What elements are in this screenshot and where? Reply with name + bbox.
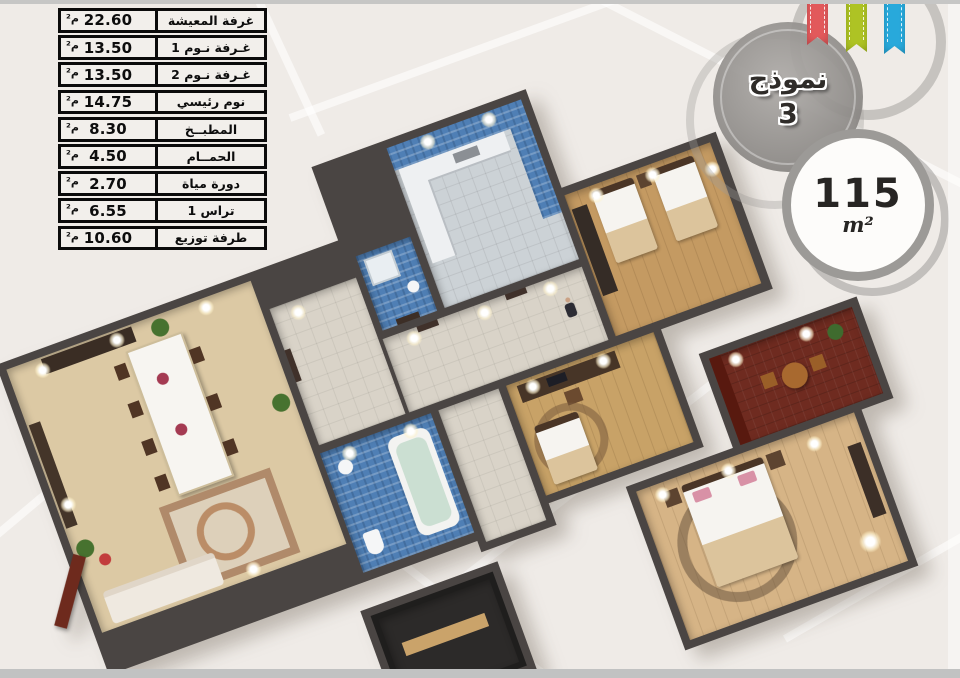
plant bbox=[270, 391, 293, 414]
area-value: 2.70 bbox=[89, 175, 127, 193]
bookmark-ribbon-blue bbox=[884, 0, 905, 54]
right-edge-highlight bbox=[948, 0, 960, 678]
area-value-cell: م²13.50 bbox=[58, 62, 158, 87]
bottom-edge-bar bbox=[0, 669, 960, 678]
top-edge-bar bbox=[0, 0, 960, 4]
sqm-unit: م² bbox=[66, 121, 79, 134]
area-value: 6.55 bbox=[89, 202, 127, 220]
sqm-unit: م² bbox=[66, 202, 79, 215]
total-area-unit: m² bbox=[842, 212, 873, 237]
terrace-chair bbox=[760, 372, 778, 390]
terrace-chair bbox=[809, 354, 827, 372]
floor-lamp-light bbox=[856, 528, 884, 556]
sqm-unit: م² bbox=[66, 148, 79, 161]
area-value: 22.60 bbox=[84, 11, 132, 29]
room-name-cell: غـرفة نـوم 2 bbox=[155, 62, 267, 87]
area-value-cell: م²10.60 bbox=[58, 226, 158, 251]
sqm-unit: م² bbox=[66, 94, 79, 107]
sqm-unit: م² bbox=[66, 175, 79, 188]
area-value-cell: م²13.50 bbox=[58, 35, 158, 60]
table-row: م²2.70 دورة مياة bbox=[58, 171, 270, 196]
room-name-cell: غـرفة نـوم 1 bbox=[155, 35, 267, 60]
table-row: م²6.55 تراس 1 bbox=[58, 198, 270, 223]
total-area-badge: 115 m² bbox=[782, 129, 934, 281]
area-value: 4.50 bbox=[89, 147, 127, 165]
area-value-cell: م²6.55 bbox=[58, 198, 158, 223]
table-row: م²13.50 غـرفة نـوم 1 bbox=[58, 35, 270, 60]
sqm-unit: م² bbox=[66, 230, 79, 243]
terrace-table bbox=[778, 359, 811, 392]
area-value: 8.30 bbox=[89, 120, 127, 138]
room-name-cell: تراس 1 bbox=[155, 198, 267, 223]
room-name-cell: غرفة المعيشة bbox=[155, 8, 267, 33]
table-row: م²8.30 المطبــخ bbox=[58, 117, 270, 142]
area-value: 13.50 bbox=[84, 66, 132, 84]
room-name-cell: دورة مياة bbox=[155, 171, 267, 196]
area-value-cell: م²8.30 bbox=[58, 117, 158, 142]
sqm-unit: م² bbox=[66, 12, 79, 25]
area-value-cell: م²22.60 bbox=[58, 8, 158, 33]
person-figure bbox=[564, 302, 578, 319]
model-badge-number: 3 bbox=[778, 97, 797, 130]
room-name-cell: الحمــام bbox=[155, 144, 267, 169]
flower-pot bbox=[97, 552, 112, 567]
flyer-canvas: نموذج 3 115 m² م²22.60 غرفة المعيشة م²13… bbox=[0, 0, 960, 678]
sqm-unit: م² bbox=[66, 66, 79, 79]
table-row: م²4.50 الحمــام bbox=[58, 144, 270, 169]
toilet bbox=[362, 528, 386, 556]
total-area-value: 115 bbox=[813, 174, 903, 214]
table-row: م²10.60 طرفة توزيع bbox=[58, 226, 270, 251]
model-badge-title: نموذج bbox=[749, 64, 827, 95]
area-value: 13.50 bbox=[84, 39, 132, 57]
nightstand bbox=[765, 450, 786, 471]
area-value: 14.75 bbox=[84, 93, 132, 111]
dining-chair bbox=[114, 363, 130, 381]
shower-tray bbox=[363, 250, 401, 287]
room-name-cell: طرفة توزيع bbox=[155, 226, 267, 251]
area-value-cell: م²14.75 bbox=[58, 90, 158, 115]
plant bbox=[825, 322, 846, 343]
dining-chair bbox=[127, 400, 143, 418]
dining-chair bbox=[141, 438, 157, 456]
room-name-cell: نوم رئيسي bbox=[155, 90, 267, 115]
table-row: م²14.75 نوم رئيسي bbox=[58, 90, 270, 115]
balcony-bench bbox=[402, 613, 489, 656]
table-row: م²22.60 غرفة المعيشة bbox=[58, 8, 270, 33]
dining-chair bbox=[154, 474, 170, 492]
room-name-cell: المطبــخ bbox=[155, 117, 267, 142]
table-row: م²13.50 غـرفة نـوم 2 bbox=[58, 62, 270, 87]
area-value: 10.60 bbox=[84, 229, 132, 247]
room-areas-table: م²22.60 غرفة المعيشة م²13.50 غـرفة نـوم … bbox=[58, 8, 270, 253]
area-value-cell: م²4.50 bbox=[58, 144, 158, 169]
area-value-cell: م²2.70 bbox=[58, 171, 158, 196]
sqm-unit: م² bbox=[66, 39, 79, 52]
wc-basin bbox=[406, 279, 421, 294]
